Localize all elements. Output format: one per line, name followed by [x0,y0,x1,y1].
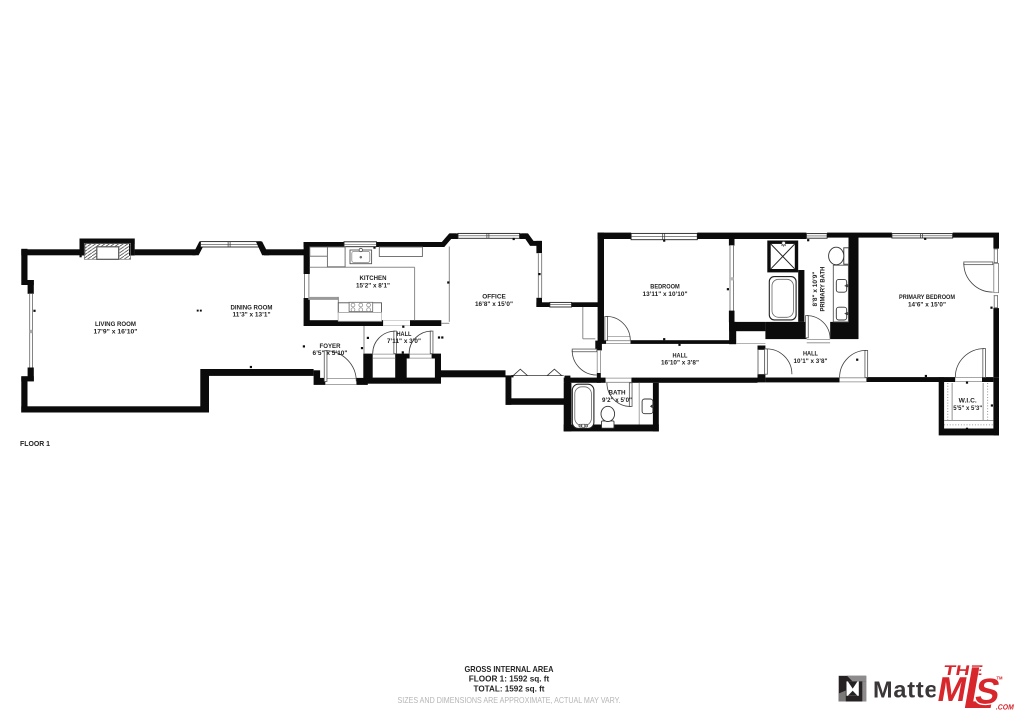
svg-text:FLOOR 1: 1592 sq. ft: FLOOR 1: 1592 sq. ft [469,675,550,684]
svg-text:16’8" x 15’0": 16’8" x 15’0" [475,301,513,308]
svg-text:HALL: HALL [397,331,412,338]
svg-text:16’10" x 3’8": 16’10" x 3’8" [661,360,699,367]
svg-text:5’5" x 5’3": 5’5" x 5’3" [953,405,982,412]
svg-text:9’2" x 5’0": 9’2" x 5’0" [602,397,632,404]
svg-text:DINING ROOM: DINING ROOM [231,305,273,312]
svg-text:KITCHEN: KITCHEN [360,275,387,282]
svg-text:TM: TM [997,676,1004,681]
svg-text:FLOOR 1: FLOOR 1 [20,439,51,448]
svg-text:OFFICE: OFFICE [482,294,506,301]
svg-text:13’11" x 10’10": 13’11" x 10’10" [643,291,688,298]
svg-text:TOTAL: 1592 sq. ft: TOTAL: 1592 sq. ft [474,685,545,694]
svg-text:14’6" x 15’0": 14’6" x 15’0" [908,301,946,308]
svg-text:HALL: HALL [673,352,688,359]
svg-text:BEDROOM: BEDROOM [650,284,680,291]
svg-text:PRIMARY BATH: PRIMARY BATH [820,266,827,311]
svg-text:FOYER: FOYER [320,343,341,350]
svg-text:8’8" x 10’9": 8’8" x 10’9" [812,272,819,307]
svg-text:BATH: BATH [609,390,626,397]
svg-text:LIVING ROOM: LIVING ROOM [95,321,136,328]
svg-text:GROSS INTERNAL AREA: GROSS INTERNAL AREA [465,665,554,674]
svg-text:6’5" x 5’10": 6’5" x 5’10" [313,350,348,357]
svg-text:SIZES AND DIMENSIONS ARE APPRO: SIZES AND DIMENSIONS ARE APPROXIMATE, AC… [398,696,621,705]
svg-text:HALL: HALL [803,351,818,358]
svg-text:15’2" x 8’1": 15’2" x 8’1" [356,282,390,289]
svg-text:PRIMARY BEDROOM: PRIMARY BEDROOM [899,294,955,301]
svg-text:7’11" x 3’0": 7’11" x 3’0" [387,338,421,345]
svg-text:.COM: .COM [995,703,1015,712]
svg-text:10’1" x 3’8": 10’1" x 3’8" [794,358,828,365]
svg-text:W.I.C.: W.I.C. [959,398,977,405]
svg-text:11’3" x 13’1": 11’3" x 13’1" [233,312,271,319]
svg-text:17’9" x 16’10": 17’9" x 16’10" [94,328,138,335]
